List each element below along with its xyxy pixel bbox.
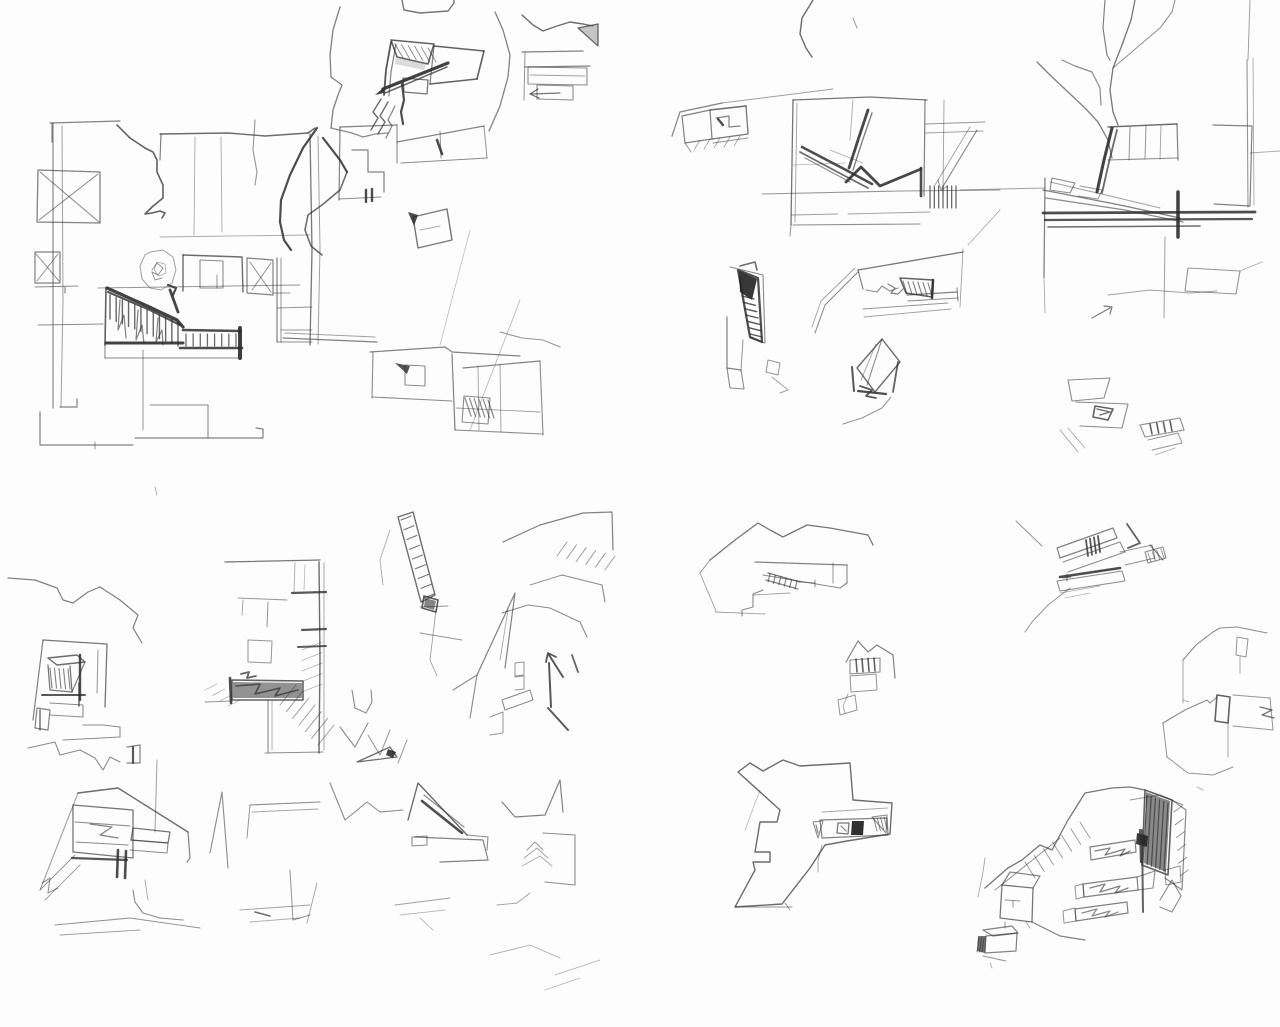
sketchbook-page [0, 0, 1280, 1027]
sketch-top-left-site-plan [35, 0, 598, 449]
sketch-bottom-left-plan-and-terrain [8, 487, 615, 990]
sketch-bottom-right-massing-studies [700, 521, 1274, 968]
sketch-top-right-elevation-studies [672, 0, 1280, 455]
sketch-canvas [0, 0, 1280, 1027]
